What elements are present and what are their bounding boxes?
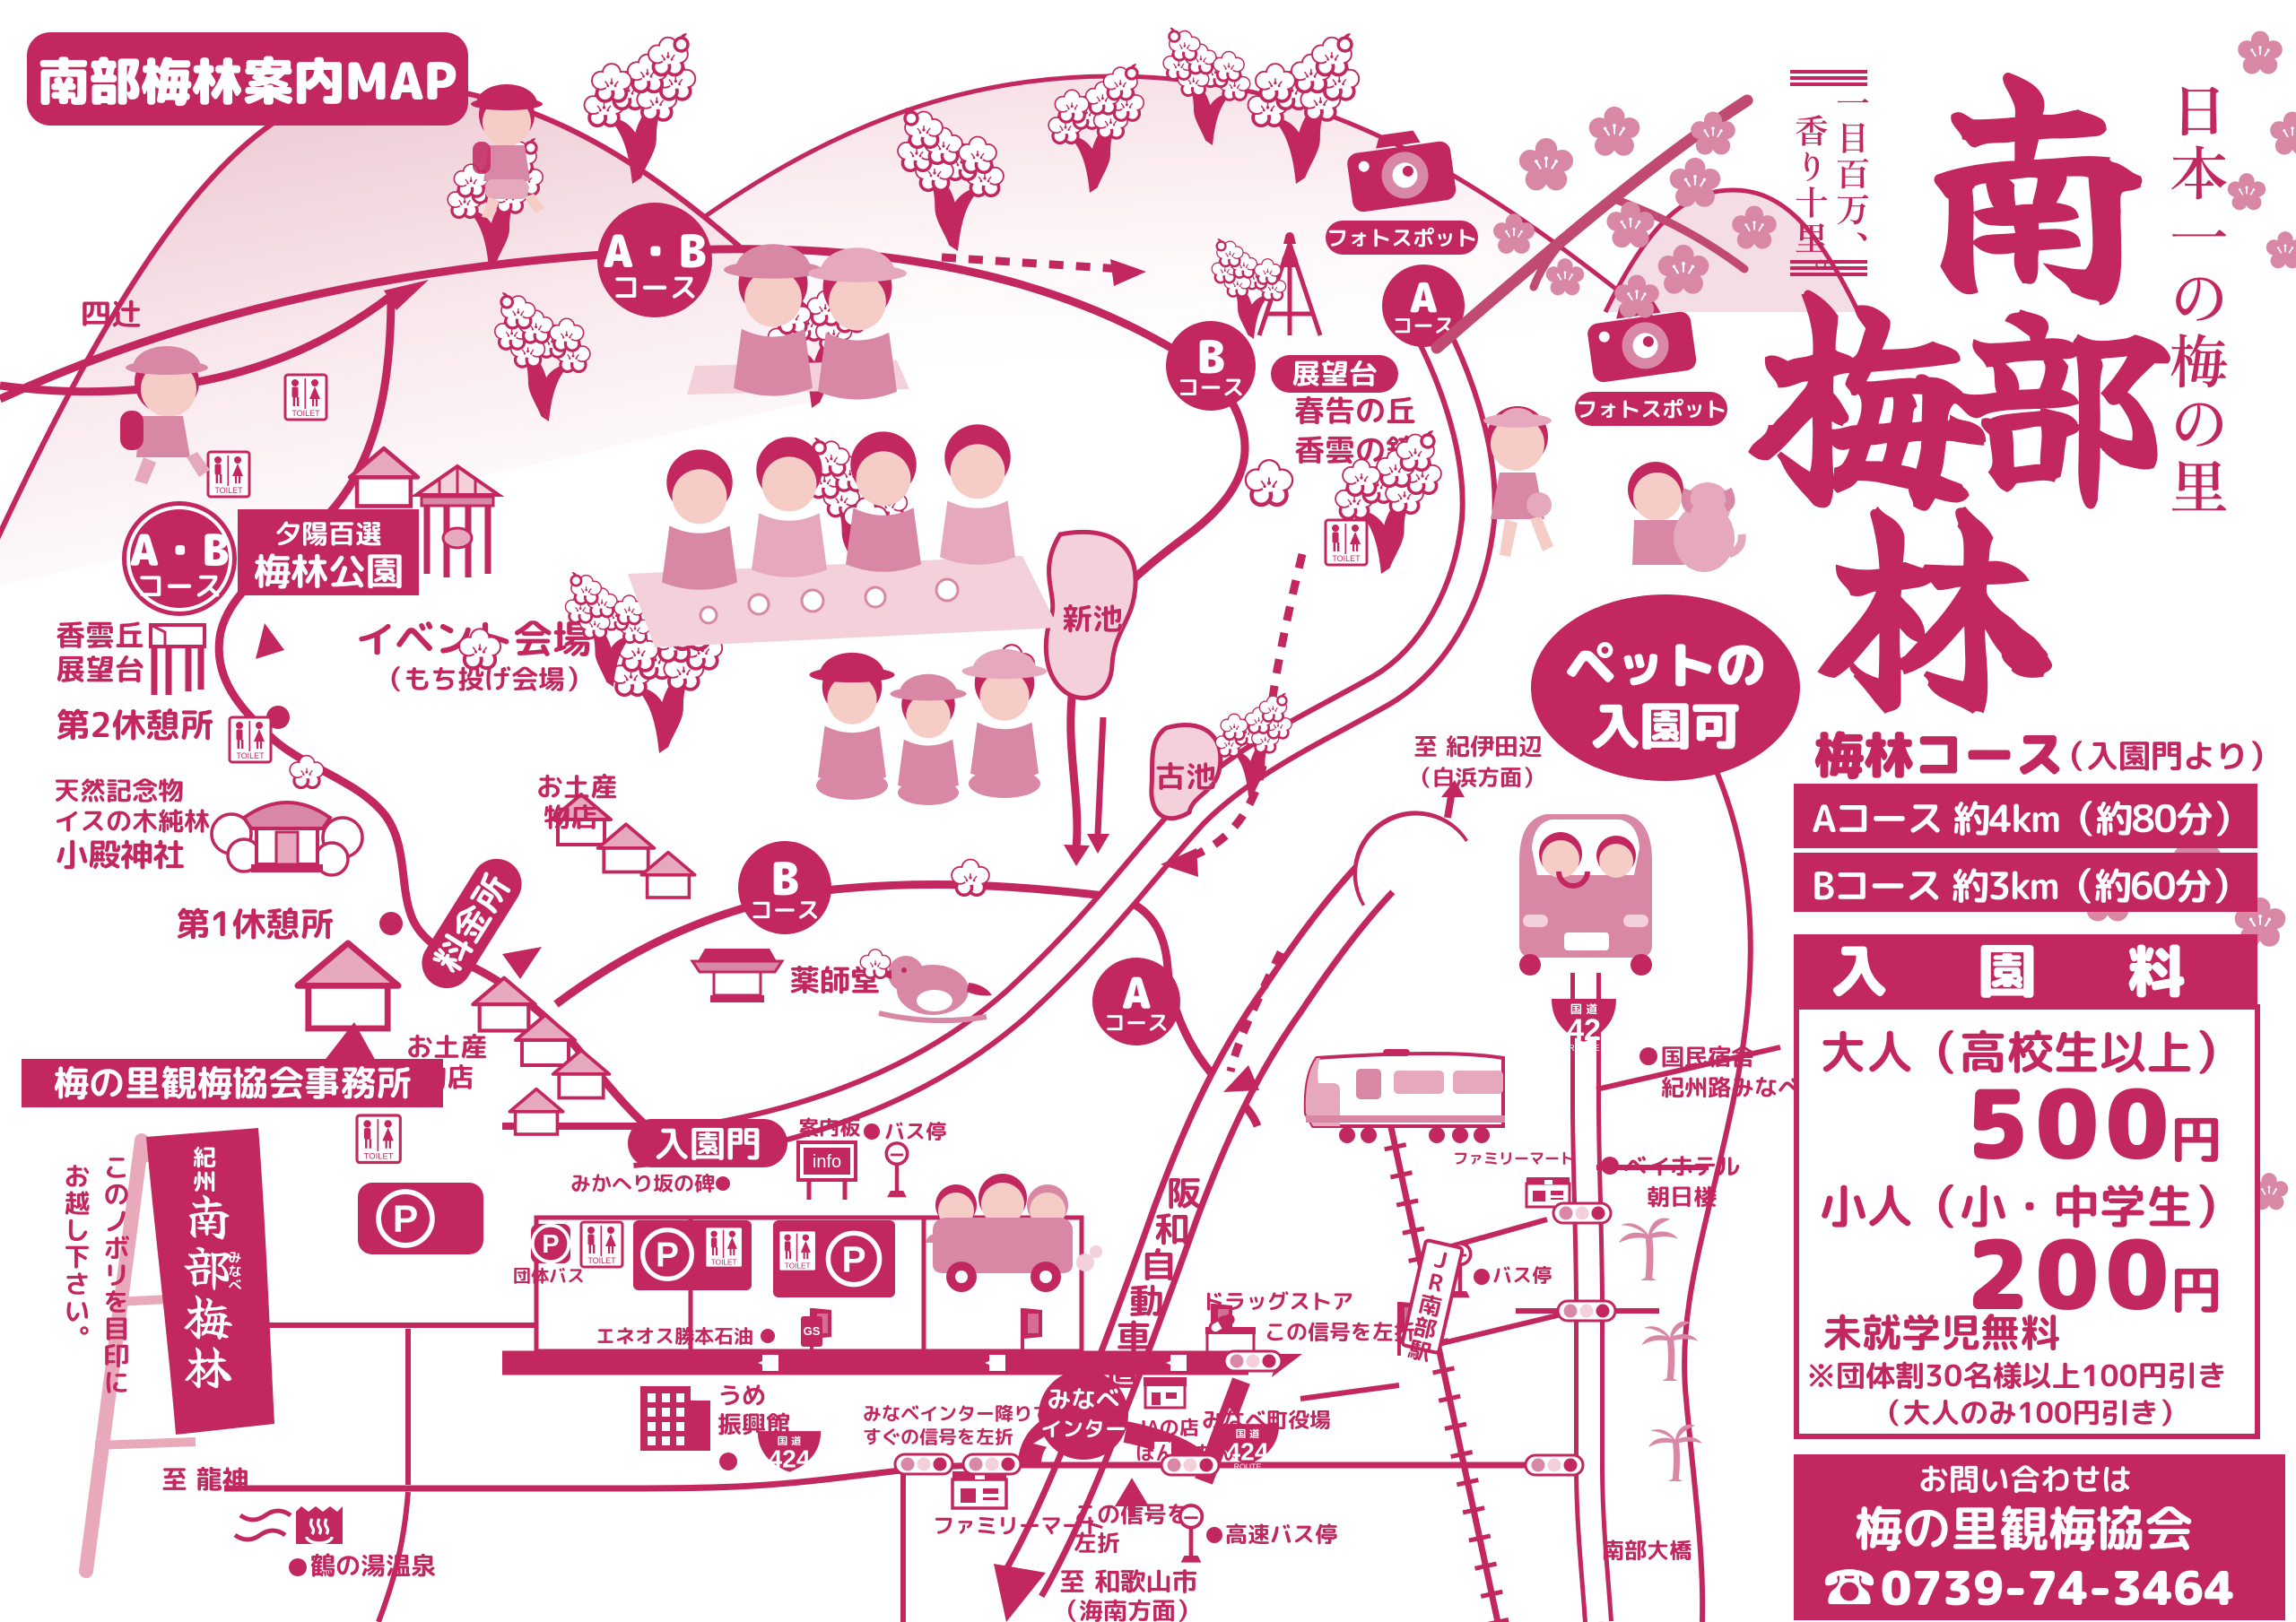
svg-text:42: 42 xyxy=(1567,1013,1601,1047)
svg-text:424: 424 xyxy=(1227,1438,1269,1466)
svg-text:ROUTE: ROUTE xyxy=(1569,1044,1600,1054)
svg-text:ROUTE: ROUTE xyxy=(1234,1462,1262,1471)
svg-text:424: 424 xyxy=(769,1445,811,1473)
svg-text:GS: GS xyxy=(804,1324,821,1338)
svg-text:ROUTE: ROUTE xyxy=(776,1470,804,1479)
svg-text:info: info xyxy=(813,1152,841,1172)
